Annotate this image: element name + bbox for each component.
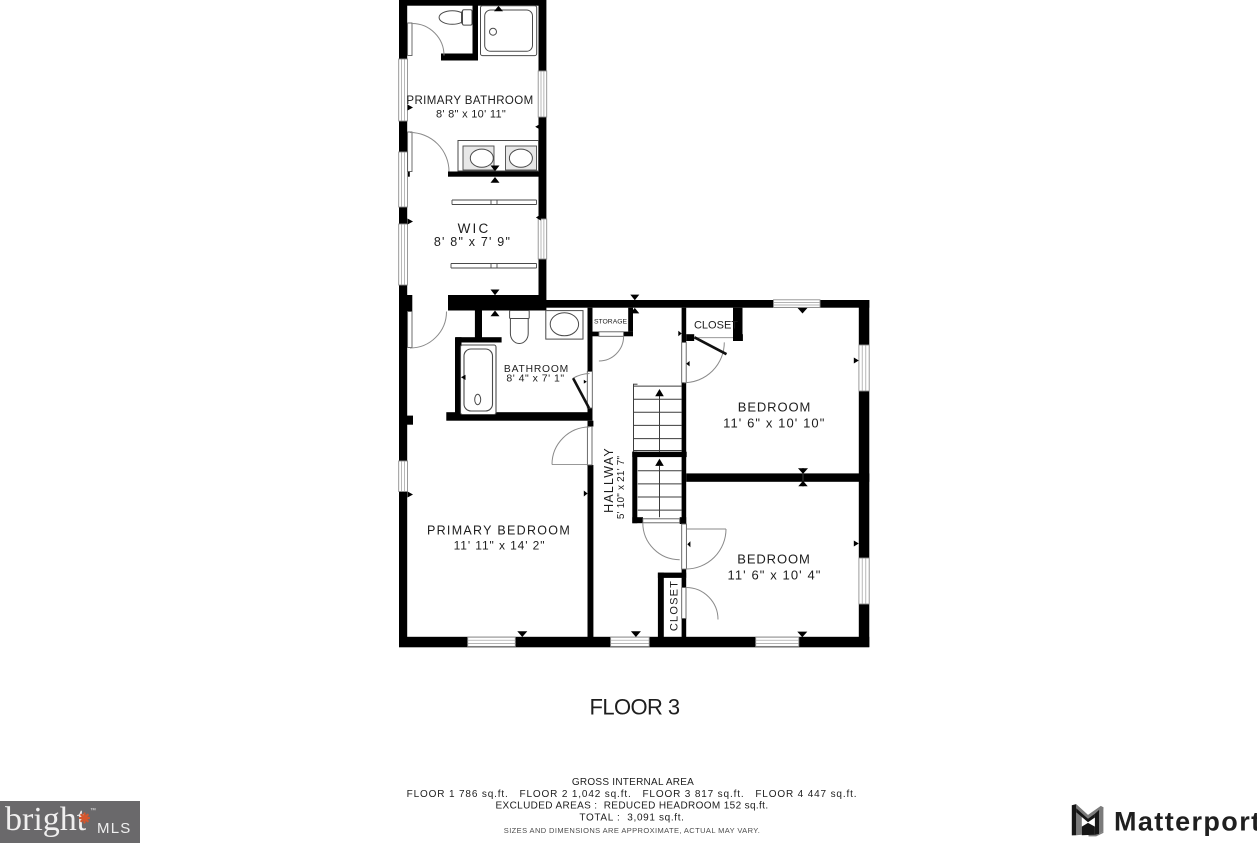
- svg-text:MLS: MLS: [97, 820, 131, 837]
- svg-text:11' 11" x 14' 2": 11' 11" x 14' 2": [454, 539, 546, 553]
- svg-text:TOTAL : 3,091 sq.ft.: TOTAL : 3,091 sq.ft.: [579, 812, 684, 823]
- svg-text:BEDROOM: BEDROOM: [738, 400, 811, 415]
- svg-text:WIC: WIC: [458, 221, 491, 236]
- svg-text:Matterport: Matterport: [1114, 806, 1257, 836]
- svg-text:FLOOR 3: FLOOR 3: [590, 694, 680, 719]
- svg-text:FLOOR 1 786 sq.ft. FLOOR 2 1: FLOOR 1 786 sq.ft. FLOOR 2 1,042 sq.ft. …: [407, 789, 858, 800]
- svg-text:11' 6" x 10' 10": 11' 6" x 10' 10": [723, 416, 825, 431]
- svg-text:PRIMARY BATHROOM: PRIMARY BATHROOM: [406, 95, 533, 107]
- svg-text:STORAGE: STORAGE: [594, 319, 628, 326]
- svg-text:5' 10" x 21' 7": 5' 10" x 21' 7": [616, 455, 627, 519]
- svg-text:CLOSET: CLOSET: [694, 319, 738, 331]
- svg-text:8' 4" x 7' 1": 8' 4" x 7' 1": [506, 373, 564, 385]
- svg-text:8' 8" x 10' 11": 8' 8" x 10' 11": [436, 109, 506, 121]
- svg-text:SIZES AND DIMENSIONS ARE APPRO: SIZES AND DIMENSIONS ARE APPROXIMATE, AC…: [504, 826, 760, 835]
- svg-text:11' 6" x 10' 4": 11' 6" x 10' 4": [727, 568, 821, 583]
- svg-text:PRIMARY BEDROOM: PRIMARY BEDROOM: [427, 524, 571, 538]
- svg-text:bright: bright: [5, 801, 87, 838]
- svg-text:™: ™: [90, 807, 96, 814]
- svg-text:GROSS INTERNAL AREA: GROSS INTERNAL AREA: [572, 777, 694, 788]
- svg-text:BEDROOM: BEDROOM: [737, 552, 810, 567]
- svg-text:HALLWAY: HALLWAY: [602, 447, 616, 513]
- svg-text:CLOSET: CLOSET: [669, 580, 681, 631]
- svg-text:8' 8" x 7' 9": 8' 8" x 7' 9": [434, 235, 511, 249]
- svg-text:EXCLUDED AREAS : REDUCED HEAD: EXCLUDED AREAS : REDUCED HEADROOM 152 sq…: [496, 801, 769, 812]
